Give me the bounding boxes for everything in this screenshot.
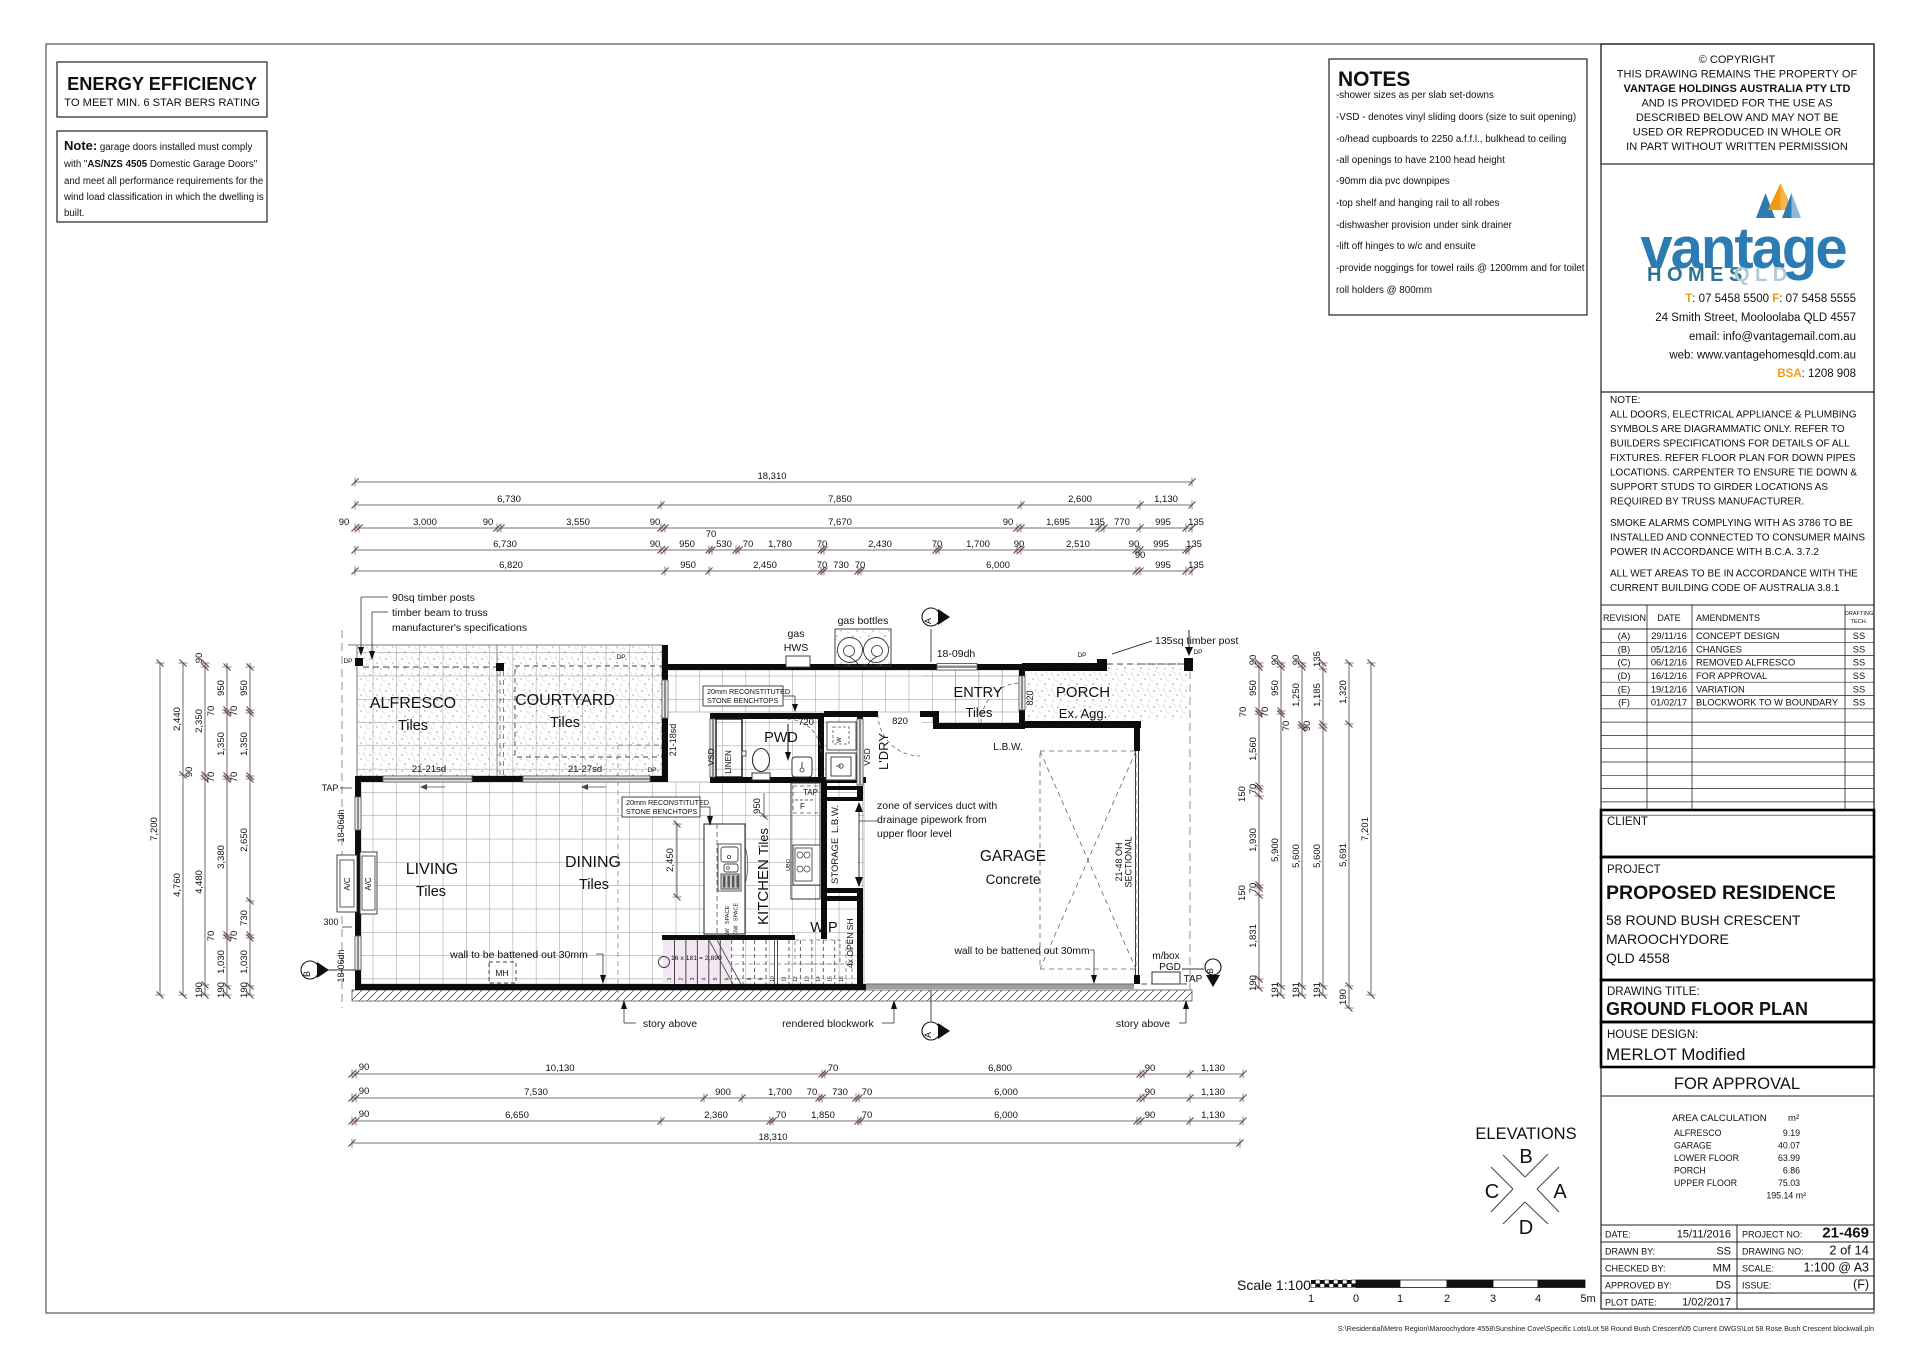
svg-text:(F): (F) [1853,1278,1869,1292]
svg-text:THIS DRAWING REMAINS THE PROPE: THIS DRAWING REMAINS THE PROPERTY OF [1617,69,1858,81]
svg-text:70: 70 [743,539,754,550]
svg-text:191: 191 [1270,982,1281,998]
svg-text:6: 6 [724,977,730,980]
svg-text:ELEVATIONS: ELEVATIONS [1475,1125,1576,1143]
svg-text:1,030: 1,030 [216,950,227,974]
svg-text:LIVING: LIVING [406,861,458,878]
svg-text:PGD: PGD [1159,962,1181,973]
svg-text:70: 70 [776,1110,787,1121]
svg-text:SCALE:: SCALE: [1742,1264,1774,1274]
svg-text:ALL DOORS, ELECTRICAL APPLIANC: ALL DOORS, ELECTRICAL APPLIANCE & PLUMBI… [1610,410,1857,421]
svg-text:190: 190 [216,982,227,998]
svg-text:gas bottles: gas bottles [838,615,889,627]
svg-text:roll holders @ 800mm: roll holders @ 800mm [1336,285,1432,296]
svg-text:6,730: 6,730 [497,494,521,505]
svg-text:29/11/16: 29/11/16 [1651,631,1687,641]
svg-text:PORCH: PORCH [1674,1166,1706,1176]
svg-text:ALL WET AREAS TO BE IN ACCORDA: ALL WET AREAS TO BE IN ACCORDANCE WITH T… [1610,569,1858,580]
svg-text:135: 135 [1186,539,1202,550]
svg-text:950: 950 [216,680,227,696]
svg-text:SS: SS [1853,644,1865,654]
svg-text:FOR APPROVAL: FOR APPROVAL [1674,1075,1800,1093]
svg-text:21-21sd: 21-21sd [412,764,446,775]
svg-text:Tiles: Tiles [416,884,446,900]
svg-text:90: 90 [1003,517,1014,528]
svg-text:ALFRESCO: ALFRESCO [1674,1128,1722,1138]
svg-text:190: 190 [1248,975,1259,991]
svg-text:900: 900 [715,1087,731,1098]
svg-text:1,185: 1,185 [1312,683,1323,707]
svg-text:19/12/16: 19/12/16 [1651,684,1687,694]
svg-text:1,780: 1,780 [768,539,792,550]
svg-text:70: 70 [206,772,217,783]
svg-text:190: 190 [1338,989,1349,1005]
svg-text:9.19: 9.19 [1783,1128,1800,1138]
svg-text:90: 90 [359,1062,370,1073]
svg-text:190: 190 [239,982,250,998]
svg-text:DP: DP [647,767,656,774]
svg-text:SS: SS [1853,671,1865,681]
svg-text:0: 0 [1353,1293,1359,1305]
svg-text:3,000: 3,000 [413,517,437,528]
svg-text:email: info@vantagemail.com.au: email: info@vantagemail.com.au [1689,331,1856,343]
svg-text:70: 70 [855,560,866,571]
svg-text:18-09dh: 18-09dh [937,648,976,660]
svg-text:3: 3 [1490,1293,1496,1305]
svg-text:190: 190 [194,982,205,998]
svg-text:4: 4 [701,977,707,980]
svg-text:PORCH: PORCH [1056,684,1110,701]
svg-text:1,320: 1,320 [1338,680,1349,704]
svg-text:A/C: A/C [343,877,352,891]
svg-text:TAP: TAP [803,788,818,797]
svg-text:AREA CALCULATION: AREA CALCULATION [1672,1113,1767,1124]
svg-text:70: 70 [932,539,943,550]
svg-text:1: 1 [667,977,673,980]
svg-text:90: 90 [1145,1063,1156,1074]
svg-text:5,600: 5,600 [1312,844,1323,868]
svg-text:70: 70 [828,1063,839,1074]
svg-text:90: 90 [1270,655,1281,666]
svg-text:m/box: m/box [1152,951,1179,962]
svg-text:Concrete: Concrete [986,872,1041,887]
svg-text:70: 70 [1281,721,1292,732]
svg-text:-provide noggings for towel ra: -provide noggings for towel rails @ 1200… [1336,263,1585,274]
svg-text:135: 135 [1188,560,1204,571]
svg-text:75.03: 75.03 [1778,1178,1800,1188]
svg-text:21-27sd: 21-27sd [568,764,602,775]
svg-text:with "AS/NZS 4505 Domestic Gar: with "AS/NZS 4505 Domestic Garage Doors" [63,159,258,170]
svg-text:REQUIRED BY TRUSS MANUFACTURER: REQUIRED BY TRUSS MANUFACTURER. [1610,497,1804,508]
svg-text:Tiles: Tiles [756,828,771,855]
svg-text:70: 70 [229,772,240,783]
svg-text:BLOCKWORK TO W BOUNDARY: BLOCKWORK TO W BOUNDARY [1696,698,1838,708]
svg-text:SMOKE ALARMS COMPLYING WITH AS: SMOKE ALARMS COMPLYING WITH AS 3786 TO B… [1610,518,1853,529]
svg-text:SS: SS [1853,698,1865,708]
svg-text:1,350: 1,350 [239,732,250,756]
svg-text:300: 300 [323,917,338,927]
svg-text:PROJECT: PROJECT [1607,864,1661,876]
svg-text:2,440: 2,440 [172,707,183,731]
svg-text:APPROVED BY:: APPROVED BY: [1605,1281,1672,1291]
svg-text:3,380: 3,380 [216,845,227,869]
svg-text:SUPPORT STUDS TO GIRDER LOCAT: SUPPORT STUDS TO GIRDER LOCATIONS AS [1610,482,1828,493]
svg-text:90: 90 [1248,655,1259,666]
svg-text:1,850: 1,850 [811,1110,835,1121]
svg-text:PLOT DATE:: PLOT DATE: [1605,1298,1657,1308]
svg-text:70: 70 [706,529,717,540]
svg-text:90: 90 [1129,539,1140,550]
svg-text:6,730: 6,730 [493,539,517,550]
svg-text:REMOVED ALFRESCO: REMOVED ALFRESCO [1696,658,1795,668]
svg-text:VSD: VSD [862,748,872,765]
svg-text:995: 995 [1155,517,1171,528]
svg-text:90: 90 [650,517,661,528]
svg-text:DS: DS [1716,1280,1731,1292]
svg-text:150: 150 [1237,885,1248,901]
svg-text:B: B [302,971,312,977]
svg-text:2,350: 2,350 [194,709,205,733]
svg-text:-shower sizes as per slab set-: -shower sizes as per slab set-downs [1336,90,1494,101]
svg-text:63.99: 63.99 [1778,1153,1800,1163]
svg-text:7,200: 7,200 [149,817,160,841]
svg-text:gas: gas [788,628,805,640]
svg-text:18,310: 18,310 [757,471,786,482]
svg-text:story above: story above [1116,1018,1170,1030]
svg-text:4,760: 4,760 [172,873,183,897]
svg-text:5: 5 [713,977,719,980]
svg-text:Tiles: Tiles [966,705,993,720]
svg-text:7: 7 [736,977,742,980]
svg-text:6,650: 6,650 [505,1110,529,1121]
svg-text:4x OPEN SH: 4x OPEN SH [845,918,855,968]
svg-text:6,800: 6,800 [988,1063,1012,1074]
svg-text:LINEN: LINEN [724,750,733,774]
svg-text:SS: SS [1853,684,1865,694]
svg-text:Tiles: Tiles [579,877,609,893]
svg-text:6,000: 6,000 [994,1087,1018,1098]
svg-text:BUILDERS SPECIFICATIONS FOR DE: BUILDERS SPECIFICATIONS FOR DETAILS OF A… [1610,439,1850,450]
svg-text:HWS: HWS [784,642,809,654]
svg-text:SYMBOLS ARE DIAGRAMMATIC ONLY.: SYMBOLS ARE DIAGRAMMATIC ONLY. REFER TO [1610,424,1845,435]
svg-text:SECTIONAL: SECTIONAL [1124,836,1134,887]
svg-text:DRAWING NO:: DRAWING NO: [1742,1247,1804,1257]
svg-text:QLD 4558: QLD 4558 [1606,950,1670,966]
svg-text:CURRENT BUILDING CODE OF AUSTR: CURRENT BUILDING CODE OF AUSTRALIA 3.8.1 [1610,583,1840,594]
svg-text:(A): (A) [1618,631,1630,641]
svg-text:2,360: 2,360 [704,1110,728,1121]
svg-text:D: D [1519,1217,1533,1239]
svg-text:SS: SS [1716,1246,1731,1258]
svg-text:18,310: 18,310 [758,1132,787,1143]
svg-text:NOTE:: NOTE: [1610,395,1641,406]
svg-text:1,350: 1,350 [216,732,227,756]
svg-text:1: 1 [1397,1293,1403,1305]
svg-text:zone of services duct with: zone of services duct with [877,800,997,812]
svg-text:90sq timber posts: 90sq timber posts [392,592,475,604]
svg-text:ENTRY: ENTRY [954,685,1003,701]
svg-text:90: 90 [339,517,350,528]
svg-text:SS: SS [1853,658,1865,668]
svg-text:24 Smith Street, Mooloolaba Q: 24 Smith Street, Mooloolaba QLD 4557 [1655,312,1856,324]
svg-text:FIXTURES. REFER FLOOR PLAN FOR: FIXTURES. REFER FLOOR PLAN FOR DOWN PIPE… [1610,453,1856,464]
svg-text:A: A [923,618,933,624]
svg-text:C: C [1485,1181,1499,1203]
svg-text:9: 9 [759,977,765,980]
svg-text:SPACE: SPACE [725,906,731,925]
svg-text:MH: MH [495,968,508,978]
svg-text:135: 135 [1312,651,1323,667]
svg-text:20mm RECONSTITUTED: 20mm RECONSTITUTED [626,798,709,807]
svg-text:58 ROUND BUSH CRESCENT: 58 ROUND BUSH CRESCENT [1606,912,1801,928]
svg-text:90: 90 [194,653,205,664]
svg-text:FOR APPROVAL: FOR APPROVAL [1696,671,1767,681]
svg-text:SS: SS [1853,631,1865,641]
svg-text:7,670: 7,670 [828,517,852,528]
svg-text:PWD: PWD [764,730,798,746]
svg-text:70: 70 [229,931,240,942]
svg-text:Ex. Agg.: Ex. Agg. [1059,706,1107,721]
svg-text:16: 16 [839,976,845,982]
svg-text:Tiles: Tiles [550,715,580,731]
svg-text:TAP: TAP [322,783,339,793]
svg-text:-top shelf and hanging rail to: -top shelf and hanging rail to all robes [1336,198,1499,209]
svg-text:CHANGES: CHANGES [1696,644,1742,654]
svg-text:and meet all performance requi: and meet all performance requirements fo… [64,176,263,187]
svg-text:DESCRIBED BELOW AND MAY NOT BE: DESCRIBED BELOW AND MAY NOT BE [1636,112,1838,124]
svg-text:70: 70 [206,706,217,717]
svg-text:2,510: 2,510 [1066,539,1090,550]
svg-text:1,030: 1,030 [239,950,250,974]
svg-text:USED OR REPRODUCED IN WHOLE OR: USED OR REPRODUCED IN WHOLE OR [1633,127,1841,139]
svg-text:ALFRESCO: ALFRESCO [370,695,456,712]
svg-text:20mm RECONSTITUTED: 20mm RECONSTITUTED [707,687,790,696]
svg-text:A: A [923,1032,933,1038]
svg-text:UBO: UBO [786,858,792,871]
svg-text:70: 70 [1248,784,1259,795]
svg-text:7,850: 7,850 [828,494,852,505]
svg-text:-all openings to have 2100 hea: -all openings to have 2100 head height [1336,155,1505,166]
svg-text:90: 90 [184,767,195,778]
svg-text:A/C: A/C [364,877,373,891]
svg-text:DRAWN BY:: DRAWN BY: [1605,1247,1655,1257]
svg-text:5,900: 5,900 [1270,838,1281,862]
svg-text:manufacturer's specifications: manufacturer's specifications [392,622,527,634]
svg-text:06/12/16: 06/12/16 [1651,658,1687,668]
svg-text:QLD: QLD [1734,264,1793,286]
svg-text:-o/head cupboards to 2250 a.f.: -o/head cupboards to 2250 a.f.f.l., bulk… [1336,134,1566,145]
svg-text:1,700: 1,700 [768,1087,792,1098]
svg-text:UPPER FLOOR: UPPER FLOOR [1674,1178,1737,1188]
svg-text:12: 12 [793,976,799,982]
svg-text:GARAGE: GARAGE [980,848,1046,865]
svg-text:B: B [1519,1146,1532,1168]
svg-text:REVISION: REVISION [1603,613,1646,623]
svg-text:STONE BENCHTOPS: STONE BENCHTOPS [626,807,697,816]
svg-text:DP: DP [1193,649,1202,656]
svg-text:-90mm dia pvc downpipes: -90mm dia pvc downpipes [1336,176,1450,187]
svg-text:820: 820 [1025,690,1035,705]
svg-text:950: 950 [1270,680,1281,696]
svg-text:ISSUE:: ISSUE: [1742,1281,1772,1291]
svg-text:1,130: 1,130 [1201,1063,1225,1074]
svg-text:40.07: 40.07 [1778,1141,1800,1151]
svg-text:90: 90 [1302,721,1313,732]
svg-text:995: 995 [1153,539,1169,550]
svg-text:F: F [800,802,805,811]
svg-text:950: 950 [680,560,696,571]
svg-text:70: 70 [206,931,217,942]
svg-text:150: 150 [1237,786,1248,802]
svg-text:2,430: 2,430 [868,539,892,550]
svg-text:DINING: DINING [565,854,621,871]
svg-text:T: 07 5458 5500 F: 07 5458 555: T: 07 5458 5500 F: 07 5458 5555 [1685,293,1856,305]
svg-text:(D): (D) [1618,671,1631,681]
svg-text:story above: story above [643,1018,697,1030]
svg-text:191: 191 [1312,982,1323,998]
svg-text:14: 14 [816,976,822,982]
svg-text:11: 11 [782,976,788,981]
svg-text:-dishwasher provision under si: -dishwasher provision under sink drainer [1336,220,1513,231]
svg-text:3: 3 [690,977,696,980]
svg-text:1/02/2017: 1/02/2017 [1682,1297,1731,1309]
svg-text:L'DRY: L'DRY [876,733,891,770]
svg-text:VSD: VSD [706,748,716,765]
svg-text:A: A [1553,1181,1567,1203]
svg-text:DRAFTING: DRAFTING [1845,611,1874,617]
svg-text:90: 90 [1145,1110,1156,1121]
svg-text:135sq timber post: 135sq timber post [1155,635,1239,647]
svg-text:2,650: 2,650 [239,828,250,852]
svg-text:950: 950 [679,539,695,550]
svg-text:16 x 181 = 2,890: 16 x 181 = 2,890 [671,955,722,962]
svg-text:CONCEPT DESIGN: CONCEPT DESIGN [1696,631,1780,641]
svg-text:1,930: 1,930 [1248,828,1259,852]
svg-text:GROUND FLOOR PLAN: GROUND FLOOR PLAN [1606,999,1808,1019]
svg-text:70: 70 [1248,883,1259,894]
svg-text:W: W [837,737,843,743]
svg-text:(B): (B) [1618,644,1630,654]
svg-text:770: 770 [1114,517,1130,528]
svg-text:15: 15 [827,976,833,982]
svg-text:drainage pipework from: drainage pipework from [877,814,987,826]
svg-text:S:\Residential\Metro Region\Ma: S:\Residential\Metro Region\Maroochydore… [1338,1324,1874,1333]
svg-text:2,450: 2,450 [753,560,777,571]
svg-text:4,480: 4,480 [194,870,205,894]
svg-text:Tiles: Tiles [398,718,428,734]
svg-text:DP: DP [1077,652,1086,659]
svg-text:upper floor level: upper floor level [877,828,952,840]
svg-text:16/12/16: 16/12/16 [1651,671,1687,681]
svg-text:21-18sd: 21-18sd [668,724,678,757]
svg-text:GARAGE: GARAGE [1674,1141,1712,1151]
svg-text:730: 730 [832,1087,848,1098]
svg-text:-lift off hinges to w/c and en: -lift off hinges to w/c and ensuite [1336,241,1476,252]
svg-text:STONE BENCHTOPS: STONE BENCHTOPS [707,696,778,705]
svg-text:6,000: 6,000 [994,1110,1018,1121]
svg-text:1,130: 1,130 [1201,1087,1225,1098]
svg-text:ENERGY EFFICIENCY: ENERGY EFFICIENCY [67,74,257,94]
svg-text:KITCHEN: KITCHEN [755,859,772,925]
svg-text:6,820: 6,820 [499,560,523,571]
svg-text:90: 90 [1145,1087,1156,1098]
svg-text:wind load classification in wh: wind load classification in which the dw… [63,192,264,203]
svg-text:5,691: 5,691 [1338,843,1349,867]
svg-text:STORAGE: STORAGE [830,838,841,884]
svg-text:15/11/2016: 15/11/2016 [1677,1229,1731,1241]
svg-text:DP: DP [343,658,352,665]
svg-text:70: 70 [817,539,828,550]
svg-text:SPACE: SPACE [734,903,740,922]
svg-text:WIP: WIP [810,920,837,936]
svg-text:5m: 5m [1580,1293,1595,1305]
svg-text:INSTALLED AND CONNECTED TO CON: INSTALLED AND CONNECTED TO CONSUMER MAIN… [1610,533,1865,544]
svg-text:70: 70 [862,1087,873,1098]
svg-text:B: B [1205,968,1215,974]
svg-text:MM: MM [1713,1263,1731,1275]
svg-text:wall to be battened out 30mm: wall to be battened out 30mm [449,949,588,961]
svg-text:(E): (E) [1618,684,1630,694]
svg-text:1,831: 1,831 [1248,924,1259,948]
svg-text:730: 730 [833,560,849,571]
svg-text:70: 70 [807,1087,818,1098]
svg-text:7,530: 7,530 [524,1087,548,1098]
svg-text:1,250: 1,250 [1291,683,1302,707]
svg-text:DP: DP [616,654,625,661]
svg-text:MERLOT Modified: MERLOT Modified [1606,1045,1746,1064]
svg-text:70: 70 [1260,707,1271,718]
svg-text:950: 950 [1248,680,1259,696]
svg-text:730: 730 [239,910,250,926]
svg-text:18-06dh: 18-06dh [336,949,346,982]
svg-text:05/12/16: 05/12/16 [1651,644,1687,654]
svg-text:HOUSE DESIGN:: HOUSE DESIGN: [1607,1029,1698,1041]
svg-text:L.B.W.: L.B.W. [830,805,841,833]
svg-text:1:100 @ A3: 1:100 @ A3 [1803,1261,1869,1275]
svg-text:NOTES: NOTES [1338,68,1410,91]
svg-text:8: 8 [747,977,753,980]
svg-text:IN PART WITHOUT WRITTEN PERMIS: IN PART WITHOUT WRITTEN PERMISSION [1626,141,1848,153]
svg-text:90: 90 [483,517,494,528]
svg-text:70: 70 [862,1110,873,1121]
svg-text:90: 90 [1135,550,1146,561]
svg-text:2,600: 2,600 [1068,494,1092,505]
svg-text:CHECKED BY:: CHECKED BY: [1605,1264,1666,1274]
svg-text:DRAWING TITLE:: DRAWING TITLE: [1607,986,1700,998]
svg-text:m²: m² [1788,1113,1800,1124]
svg-text:Scale 1:100: Scale 1:100 [1237,1277,1311,1293]
svg-text:DATE:: DATE: [1605,1230,1631,1240]
svg-text:90: 90 [1291,655,1302,666]
svg-text:TO MEET MIN. 6 STAR BERS RATIN: TO MEET MIN. 6 STAR BERS RATING [64,97,260,109]
svg-text:21-48 OH: 21-48 OH [1114,842,1124,881]
svg-text:wall to be battened out 30mm: wall to be battened out 30mm [953,946,1089,957]
svg-text:820: 820 [892,716,908,727]
svg-text:COURTYARD: COURTYARD [515,692,615,709]
svg-text:PROPOSED RESIDENCE: PROPOSED RESIDENCE [1606,882,1836,904]
svg-text:2: 2 [678,977,684,980]
svg-text:995: 995 [1155,560,1171,571]
svg-text:70: 70 [229,706,240,717]
svg-text:AND IS PROVIDED FOR THE USE AS: AND IS PROVIDED FOR THE USE AS [1641,98,1832,110]
svg-text:LOCATIONS. CARPENTER TO ENSURE: LOCATIONS. CARPENTER TO ENSURE TIE DOWN … [1610,468,1857,479]
svg-text:DW: DW [734,925,740,935]
svg-text:7,201: 7,201 [1360,817,1371,841]
svg-text:L.B.W.: L.B.W. [993,742,1022,753]
svg-text:TECH.: TECH. [1851,619,1868,625]
svg-text:1,560: 1,560 [1248,737,1259,761]
svg-text:(F): (F) [1618,698,1630,708]
